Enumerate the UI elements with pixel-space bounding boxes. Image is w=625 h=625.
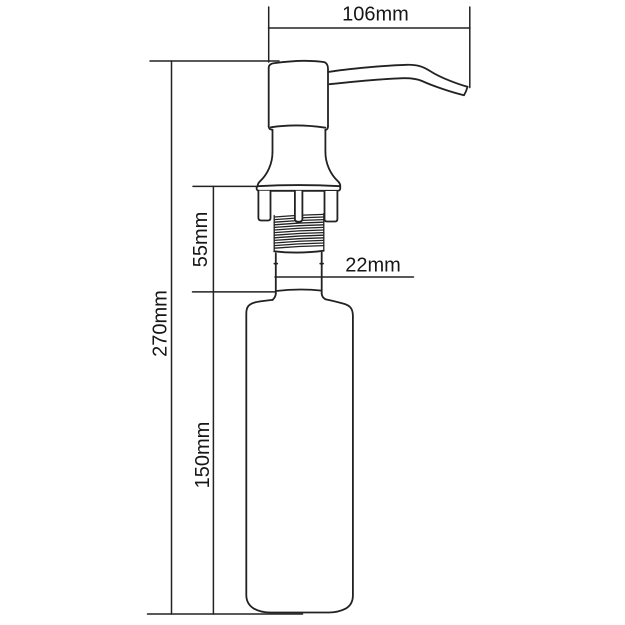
svg-text:55mm: 55mm <box>190 212 212 268</box>
svg-text:22mm: 22mm <box>345 255 401 277</box>
svg-text:106mm: 106mm <box>342 4 409 26</box>
svg-text:270mm: 270mm <box>150 290 172 357</box>
svg-text:150mm: 150mm <box>192 422 214 489</box>
